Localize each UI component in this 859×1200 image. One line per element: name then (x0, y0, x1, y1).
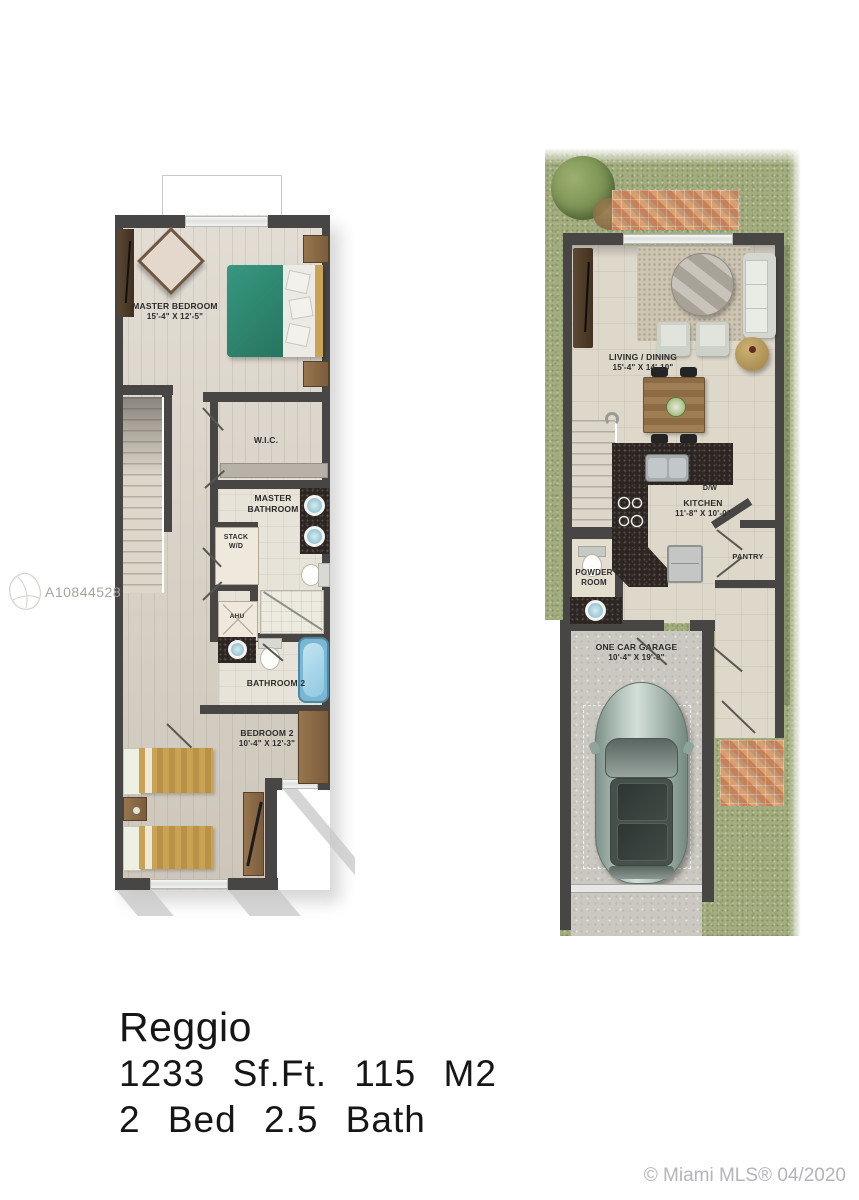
sink (304, 495, 325, 516)
guitar (246, 801, 263, 866)
room-label-ahu: AHU (219, 613, 255, 621)
garage-cutout (545, 620, 560, 936)
first-floor-plan: LIVING / DINING15'-4" X 14'-10" D/W KITC… (545, 148, 807, 940)
listing-watermark: A10844528 (5, 570, 121, 614)
sofa (743, 253, 776, 338)
tv-console (573, 248, 593, 348)
bed-blanket (227, 265, 283, 357)
label-dishwasher: D/W (693, 484, 727, 493)
master-bed (227, 265, 323, 357)
room-name: KITCHEN (683, 498, 722, 508)
room-dims: 15'-4" X 14'-10" (583, 363, 703, 373)
room-label-bedroom-2: BEDROOM 210'-4" X 12'-3" (221, 728, 313, 749)
room-name: D/W (703, 485, 717, 492)
sunroof-pane (617, 783, 668, 821)
side-table (735, 337, 769, 371)
sofa-cushion (745, 284, 768, 309)
room-name: BATHROOM 2 (247, 678, 306, 688)
sofa-cushion (745, 260, 768, 285)
twin-bed (123, 826, 213, 869)
bed-fold (145, 748, 152, 793)
centerpiece (666, 397, 686, 417)
pillow (285, 270, 311, 294)
room-dims: 10'-4" X 12'-3" (221, 739, 313, 749)
bathtub (298, 637, 329, 703)
car-windshield (605, 738, 678, 778)
room-name: MASTER BEDROOM (132, 301, 217, 311)
armchair (696, 322, 729, 356)
room-dims: 15'-4" X 12'-5" (127, 312, 223, 322)
tv-screen (584, 262, 590, 332)
pillow (288, 296, 313, 320)
armchair (657, 322, 690, 356)
wic-shelf (220, 463, 328, 478)
wall (115, 215, 185, 228)
wall (115, 878, 150, 890)
twin-bed (123, 748, 213, 793)
sink-basin (648, 458, 667, 478)
room-label-master-bathroom: MASTER BATHROOM (241, 493, 305, 515)
toilet (301, 563, 329, 585)
mls-logo-icon (5, 570, 45, 614)
wall (563, 233, 572, 623)
console-table (243, 792, 264, 876)
entry-pavers (720, 740, 784, 806)
patio-pavers (612, 190, 739, 230)
copyright-watermark: © Miami MLS® 04/2020 (620, 1165, 846, 1187)
room-name: AHU (230, 613, 245, 620)
car-roof (610, 778, 673, 866)
entry-hall-floor (715, 588, 775, 738)
tv-screen (125, 241, 131, 303)
coffee-table (671, 253, 734, 316)
sink (228, 640, 247, 659)
caption-block: Reggio 1233 Sf.Ft. 115 M2 2 Bed 2.5 Bath (119, 1003, 497, 1142)
room-name: MASTER BATHROOM (247, 493, 298, 514)
vanity (218, 637, 256, 663)
armchair-seat (700, 325, 725, 346)
room-name: BEDROOM 2 (240, 728, 293, 738)
sink (585, 600, 606, 621)
sink-basin (669, 458, 686, 478)
wall (560, 620, 571, 930)
handrail-curl (605, 412, 619, 426)
nightstand (123, 797, 147, 821)
wall-shadow-grass (784, 245, 790, 705)
wall (775, 233, 784, 738)
car-rear-window (609, 866, 674, 879)
driveway (571, 893, 702, 936)
wall (203, 392, 330, 402)
listing-id-text: A10844528 (45, 584, 121, 600)
wall (265, 778, 277, 890)
area-line: 1233 Sf.Ft. 115 M2 (119, 1051, 497, 1096)
wall (715, 580, 784, 588)
room-name: STACK W/D (224, 534, 249, 550)
staircase-shadow (123, 397, 162, 477)
model-name: Reggio (119, 1003, 497, 1051)
car (595, 682, 688, 884)
wall (210, 392, 218, 487)
lamp (132, 806, 141, 815)
second-floor-plan: MASTER BEDROOM15'-4" X 12'-5" W.I.C. MAS… (115, 175, 355, 940)
cooktop (616, 491, 644, 535)
floor-plan-sheet: MASTER BEDROOM15'-4" X 12'-5" W.I.C. MAS… (0, 0, 859, 1200)
room-label-living-dining: LIVING / DINING15'-4" X 14'-10" (583, 352, 703, 373)
vase (749, 346, 756, 353)
nightstand (303, 235, 329, 263)
fridge-door-line (671, 563, 699, 564)
room-label-kitchen: KITCHEN11'-8" X 10'-0" (670, 498, 736, 519)
room-label-garage: ONE CAR GARAGE10'-4" X 19'-0" (573, 642, 700, 663)
wall (268, 215, 330, 228)
sliding-glass-door (623, 234, 733, 244)
sink (304, 526, 325, 547)
room-dims: 11'-8" X 10'-0" (670, 509, 736, 519)
room-label-bathroom-2: BATHROOM 2 (233, 678, 319, 689)
sofa-cushion (745, 308, 768, 333)
wall (740, 520, 784, 528)
room-label-master-bedroom: MASTER BEDROOM15'-4" X 12'-5" (127, 301, 223, 322)
toilet-tank (318, 563, 330, 587)
sunroof-pane (617, 823, 668, 861)
pillow (285, 323, 311, 347)
window (185, 216, 268, 227)
staircase (572, 420, 617, 527)
room-name: LIVING / DINING (609, 352, 677, 362)
refrigerator (667, 545, 703, 583)
bed-fold (145, 826, 152, 869)
window (150, 879, 228, 889)
beds-baths-line: 2 Bed 2.5 Bath (119, 1097, 497, 1142)
room-label-powder-room: POWDER ROOM (565, 568, 623, 589)
nightstand (303, 361, 329, 387)
room-label-pantry: PANTRY (719, 552, 777, 562)
lawn-fade-right (789, 148, 803, 936)
armchair-seat (661, 325, 686, 346)
room-label-wic: W.I.C. (220, 435, 312, 446)
shower (260, 590, 324, 634)
powder-vanity (570, 597, 622, 624)
room-name: POWDER ROOM (575, 568, 612, 587)
dining-table (643, 377, 705, 433)
wall (702, 620, 714, 902)
bed-headboard (315, 265, 323, 357)
room-dims: 10'-4" X 19'-0" (573, 653, 700, 663)
wall (563, 233, 623, 245)
room-name: W.I.C. (254, 435, 278, 445)
garage-door (571, 884, 702, 893)
shower-glass (263, 591, 323, 631)
room-name: ONE CAR GARAGE (596, 642, 678, 652)
room-label-stack-wd: STACK W/D (216, 533, 256, 551)
kitchen-sink (645, 454, 689, 482)
